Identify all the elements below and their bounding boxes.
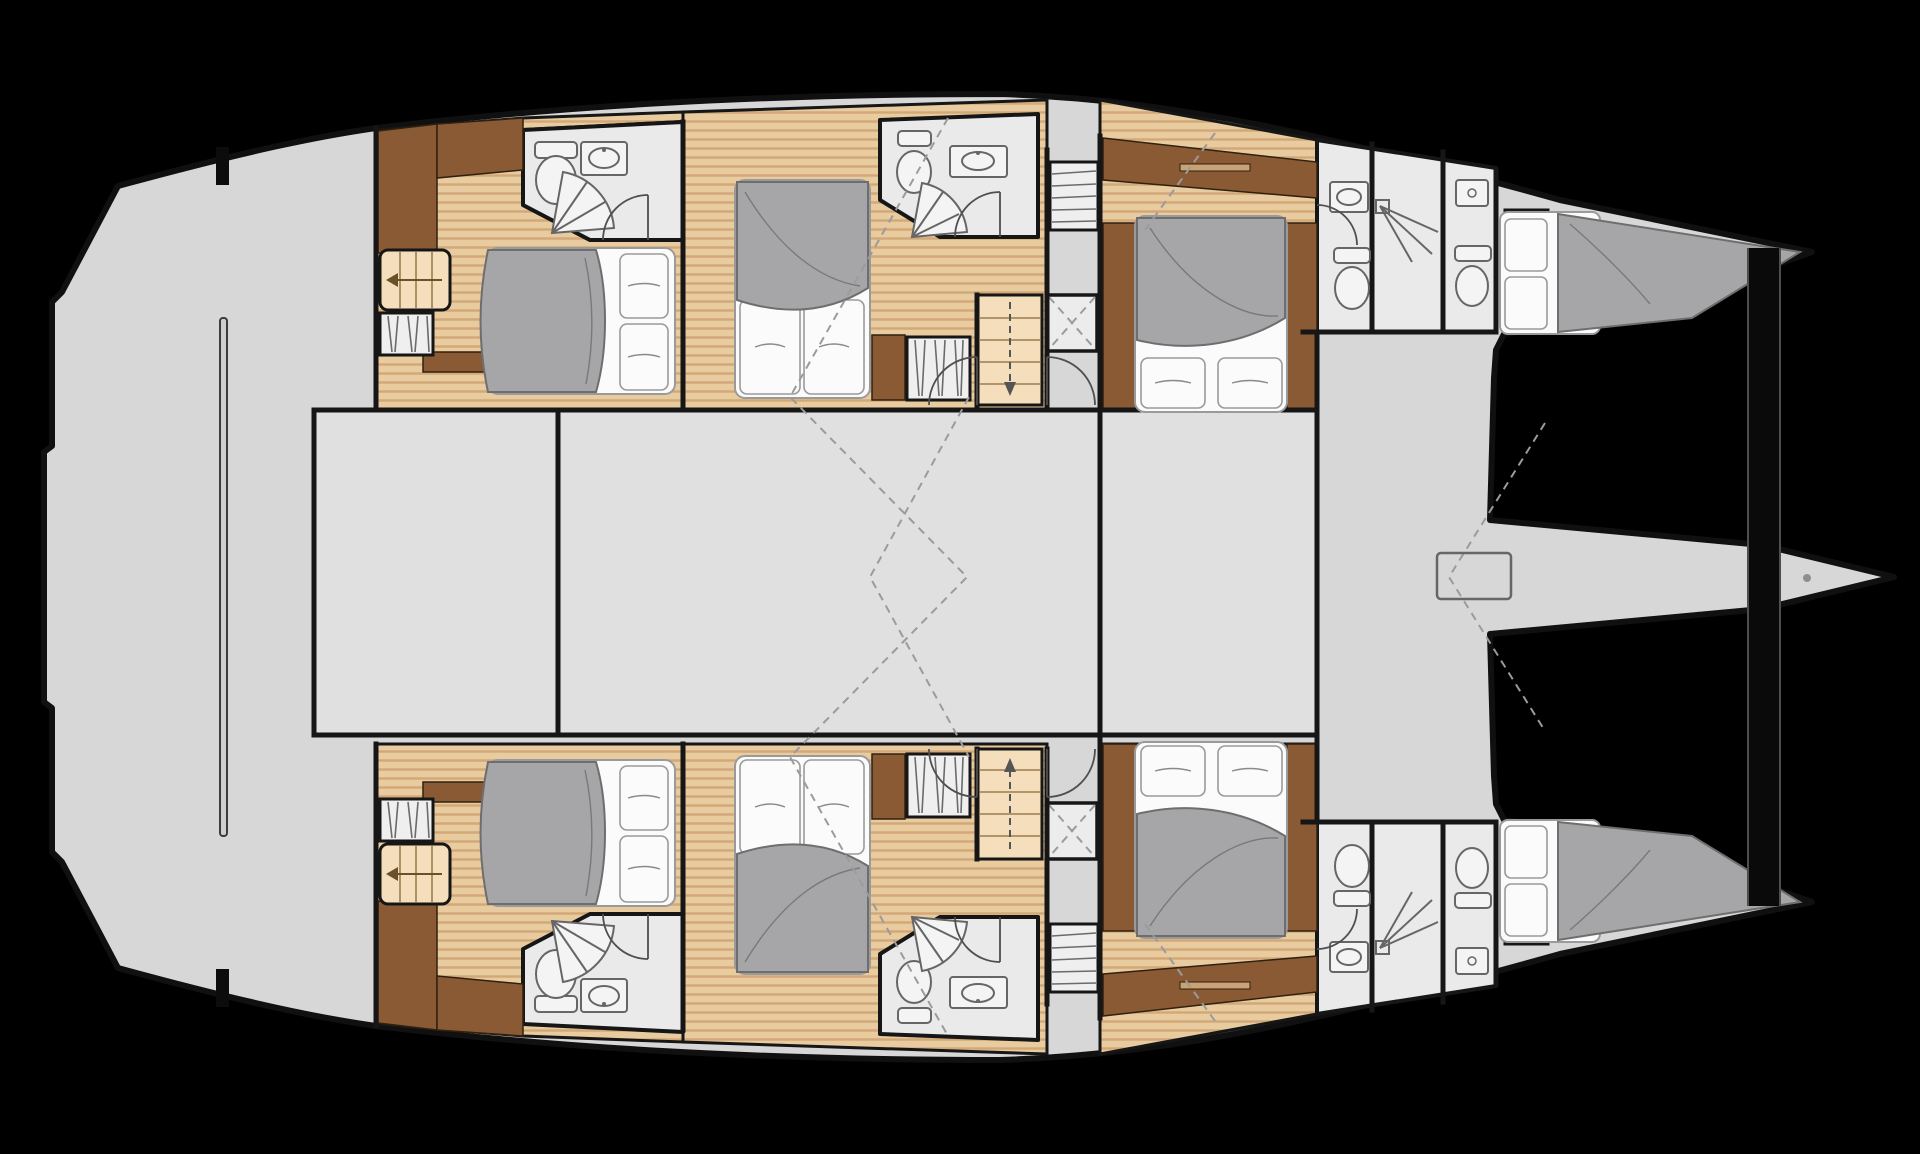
sink-port-mid bbox=[950, 146, 1007, 177]
sink-starboard-mid bbox=[950, 977, 1007, 1008]
wardrobe-starboard-mid bbox=[907, 754, 970, 817]
salon-area-port-aft bbox=[314, 410, 1100, 735]
sideboard-starboard-aft bbox=[437, 976, 523, 1036]
stairs-port-aft bbox=[380, 250, 450, 310]
bedside-starboard-forward-right bbox=[1287, 744, 1317, 931]
forward-crossbeam bbox=[1748, 248, 1780, 906]
cabinet-starboard-mid bbox=[872, 754, 905, 819]
salon-rooms bbox=[314, 410, 1317, 735]
wardrobe-starboard-aft bbox=[380, 799, 433, 841]
sink-bow-starboard-2 bbox=[1456, 948, 1488, 974]
bed-port-mid bbox=[735, 180, 870, 398]
toilet-bow-starboard bbox=[1334, 845, 1370, 906]
forward-corridor bbox=[1100, 410, 1317, 735]
floor-plan-canvas: Catamaran yacht floor plan - lower deck … bbox=[0, 0, 1920, 1154]
bed-starboard-mid bbox=[735, 756, 870, 974]
stairs-starboard-aft bbox=[380, 844, 450, 904]
sink-port-aft bbox=[581, 142, 627, 175]
bowsprit-fitting bbox=[1803, 574, 1811, 582]
wardrobe-cabinet-port-aft bbox=[378, 124, 437, 253]
cabinet-port-mid bbox=[872, 335, 905, 400]
shelf-locker-starboard bbox=[1050, 924, 1098, 992]
bed-port-aft bbox=[481, 248, 676, 394]
shelf-locker-port bbox=[1050, 162, 1098, 230]
bedside-port-forward-left bbox=[1103, 223, 1137, 410]
toilet-bow-port bbox=[1334, 248, 1370, 309]
stairs-companionway-port bbox=[978, 295, 1042, 405]
sink-bow-port bbox=[1330, 182, 1368, 212]
floor-plan-page: Catamaran yacht floor plan - lower deck … bbox=[0, 0, 1920, 1154]
sink-bow-starboard bbox=[1330, 942, 1368, 972]
bed-starboard-aft bbox=[481, 760, 676, 906]
bed-port-forward bbox=[1135, 216, 1287, 412]
toilet-bow-port-2 bbox=[1455, 246, 1491, 306]
sink-bow-port-2 bbox=[1456, 180, 1488, 206]
deck-seam bbox=[220, 318, 227, 836]
wardrobe-port-aft bbox=[380, 313, 433, 355]
stairs-companionway-starboard bbox=[978, 749, 1042, 859]
bedside-starboard-forward-left bbox=[1103, 744, 1137, 931]
bedside-port-forward-right bbox=[1287, 223, 1317, 410]
wardrobe-port-mid bbox=[907, 337, 970, 400]
sideboard-port-aft bbox=[437, 118, 523, 178]
deck-notch-starboard bbox=[216, 969, 229, 1007]
wardrobe-cabinet-starboard-aft bbox=[378, 901, 437, 1030]
bed-starboard-forward bbox=[1135, 742, 1287, 938]
toilet-bow-starboard-2 bbox=[1455, 848, 1491, 908]
deck-notch-port bbox=[216, 147, 229, 185]
sink-starboard-aft bbox=[581, 979, 627, 1012]
